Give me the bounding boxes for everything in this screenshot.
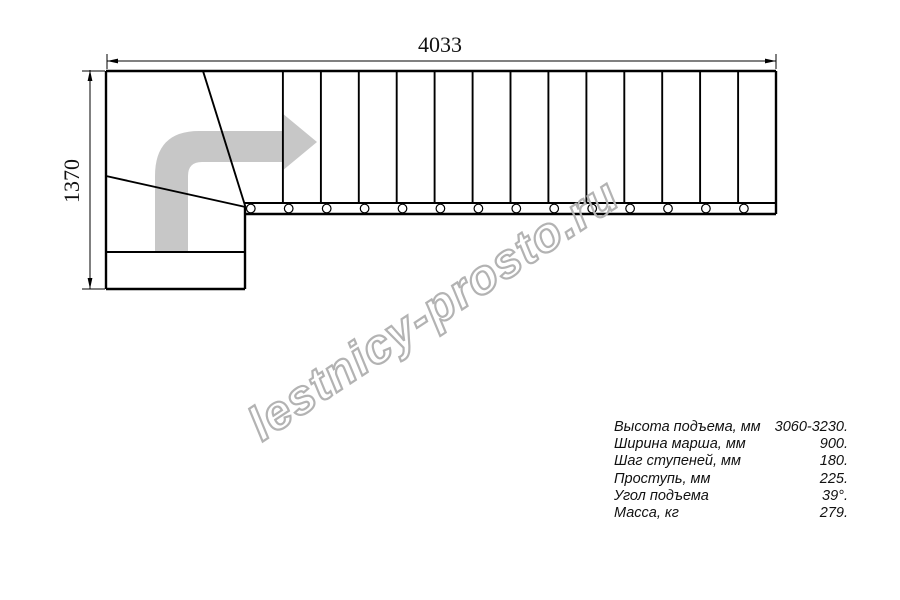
spec-label: Шаг ступеней, мм — [614, 453, 741, 470]
spec-value: 180. — [820, 453, 848, 470]
spec-value: 225. — [820, 471, 848, 488]
baluster-circles — [247, 204, 749, 213]
height-dimension-label: 1370 — [59, 159, 84, 203]
spec-value: 3060-3230. — [775, 419, 848, 436]
spec-value: 39°. — [822, 488, 848, 505]
width-dimension-label: 4033 — [418, 32, 462, 57]
staircase-drawing-page: 4033 1370 lestnicy-prosto.ru Высота подъ… — [0, 0, 900, 600]
spec-label: Масса, кг — [614, 505, 679, 522]
watermark-text: lestnicy-prosto.ru — [239, 168, 629, 451]
spec-label: Угол подъема — [614, 488, 709, 505]
top-dimension: 4033 — [107, 32, 776, 69]
spec-row: Ширина марша, мм 900. — [614, 436, 848, 453]
spec-label: Ширина марша, мм — [614, 436, 746, 453]
tread-lines — [283, 71, 738, 203]
spec-row: Высота подъема, мм 3060-3230. — [614, 419, 848, 436]
spec-value: 900. — [820, 436, 848, 453]
spec-label: Высота подъема, мм — [614, 419, 761, 436]
spec-row: Угол подъема 39°. — [614, 488, 848, 505]
spec-value: 279. — [820, 505, 848, 522]
spec-row: Проступь, мм 225. — [614, 471, 848, 488]
spec-label: Проступь, мм — [614, 471, 710, 488]
specs-table: Высота подъема, мм 3060-3230. Ширина мар… — [614, 419, 848, 522]
left-dimension: 1370 — [59, 70, 105, 289]
direction-arrow — [155, 113, 317, 251]
spec-row: Масса, кг 279. — [614, 505, 848, 522]
spec-row: Шаг ступеней, мм 180. — [614, 453, 848, 470]
